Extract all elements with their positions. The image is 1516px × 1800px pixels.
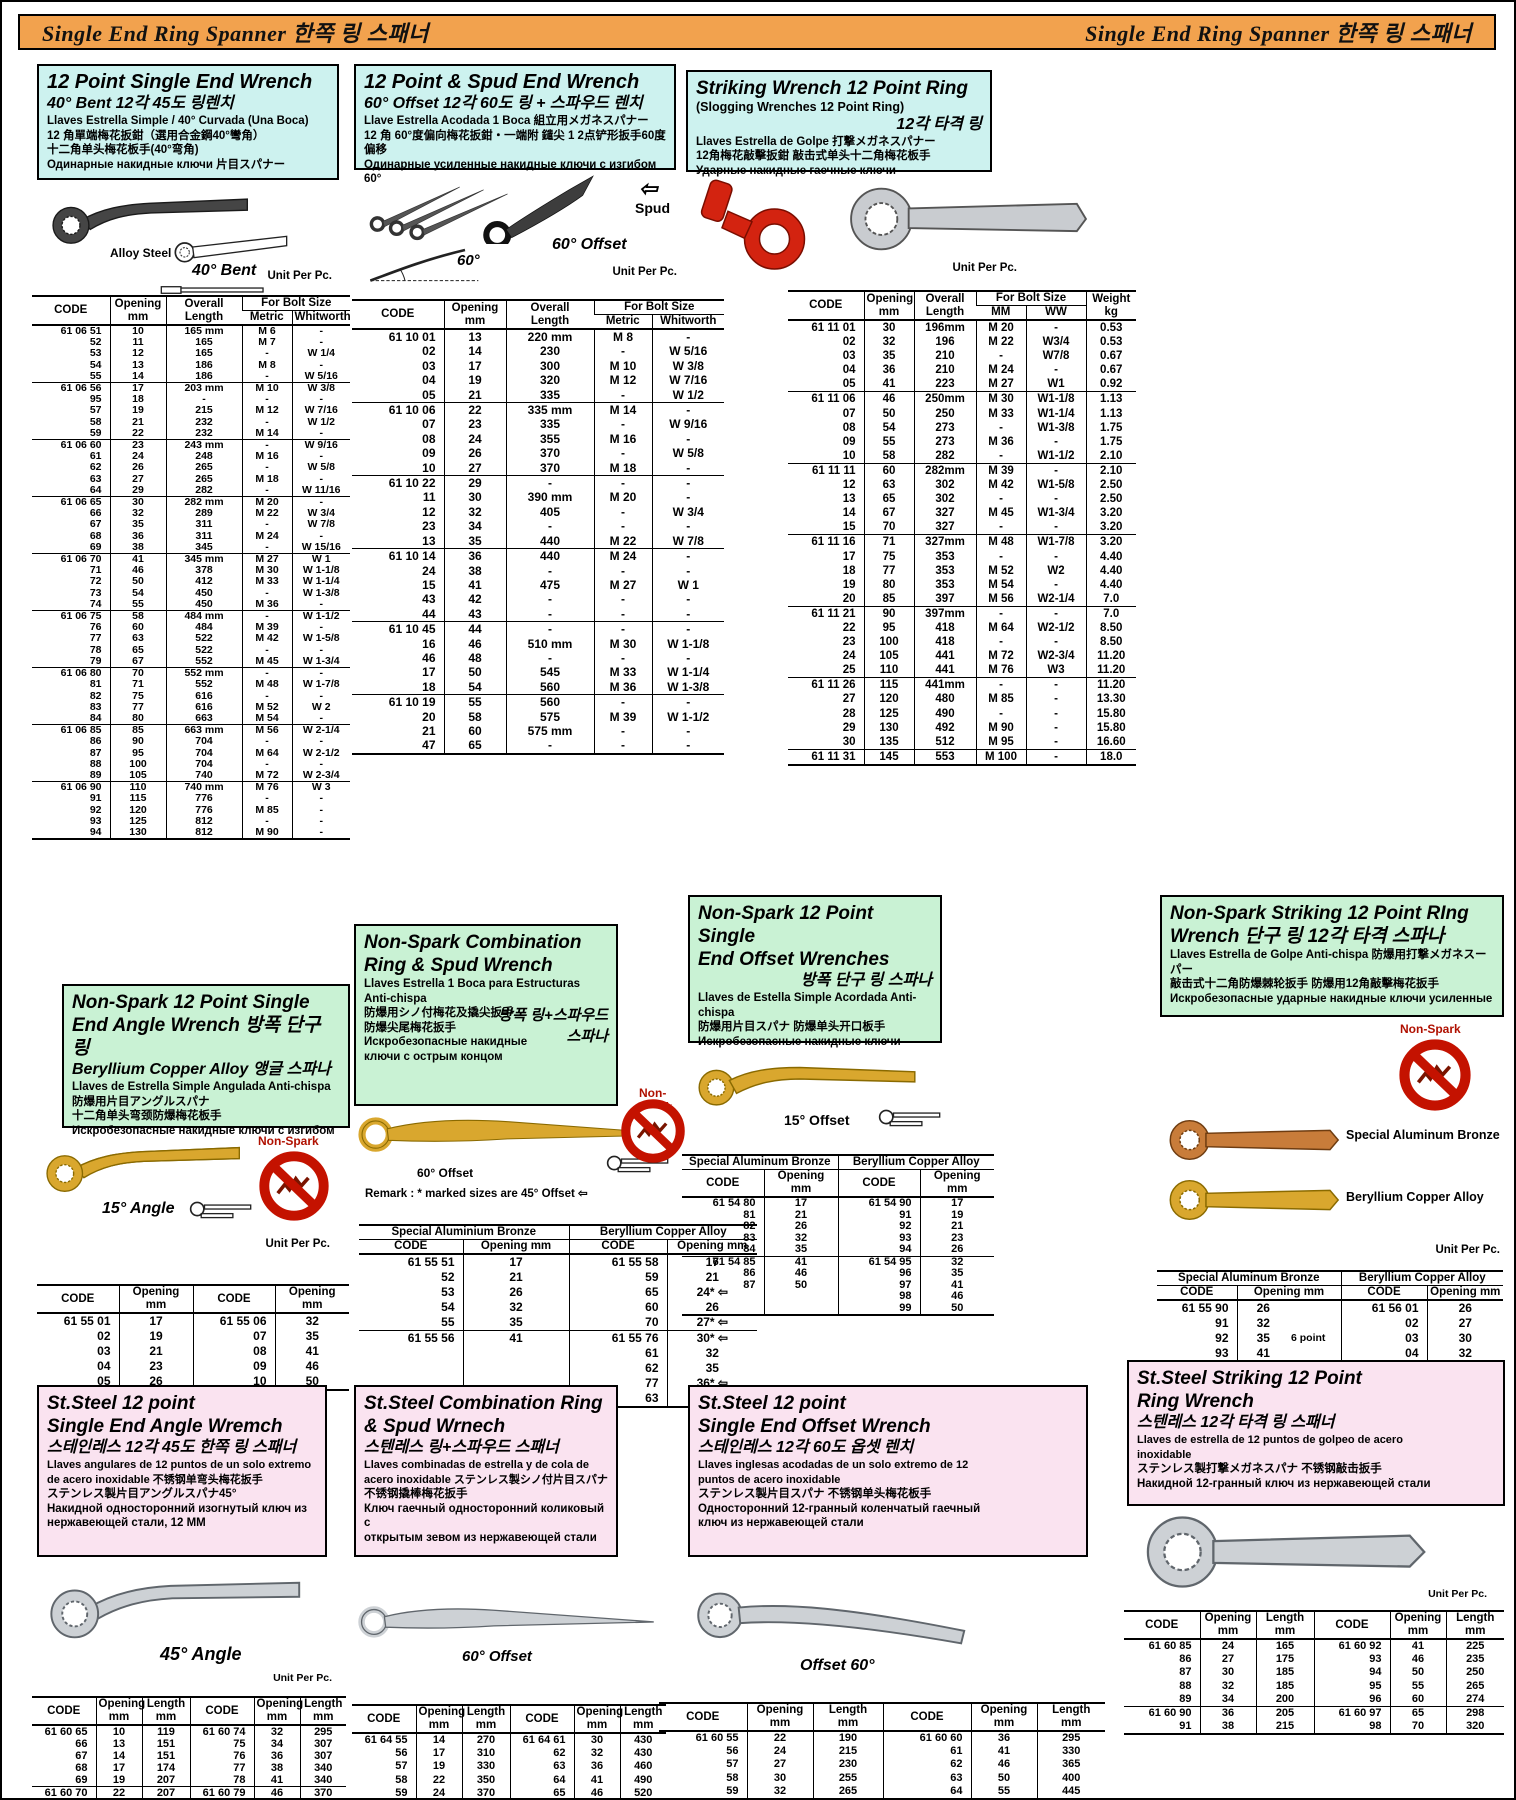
table-cell: 370 (462, 1787, 510, 1800)
table-row: 1130390 mmM 20- (352, 490, 724, 504)
table-cell: 19 (788, 578, 864, 592)
table-cell: - (652, 490, 724, 504)
table-row: 4443--- (352, 607, 724, 622)
table-cell: 78 (190, 1774, 254, 1787)
table-cell: 61 56 01 (1341, 1300, 1427, 1316)
table-cell: 65 (444, 738, 506, 753)
table-cell: W7/8 (1026, 349, 1086, 363)
table-cell: 41 (444, 578, 506, 592)
col-length: Length mm (813, 1703, 883, 1731)
col-opening: Opening mm (864, 291, 914, 320)
table-cell: 95 (1314, 1680, 1390, 1693)
table-cell: - (506, 476, 594, 491)
table-cell: 69 (32, 1774, 96, 1787)
table-cell: 93 (1157, 1346, 1237, 1361)
table-cell: 3.20 (1086, 535, 1136, 550)
table-cell: 89 (32, 770, 110, 782)
col-weight: Weight kg (1086, 291, 1136, 320)
table-cell: 220 mm (506, 329, 594, 344)
table-row: 61 11 2190397mm--7.0 (788, 606, 1136, 621)
table-cell: 54 (444, 680, 506, 695)
col-opening: Opening mm (971, 1703, 1037, 1731)
table-cell: 08 (193, 1344, 275, 1359)
table-cell: M 22 (594, 534, 652, 549)
table-cell: 02 (788, 335, 864, 349)
table-cell: 38 (254, 1762, 300, 1774)
table-cell: 30* ⇦ (667, 1331, 757, 1347)
table-cell: 62 (510, 1747, 574, 1760)
table-cell: M 30 (976, 392, 1026, 407)
table-cell: 60 (864, 463, 914, 478)
table-row: 1570327--3.20 (788, 520, 1136, 535)
table-cell: 47 (352, 738, 444, 753)
table-cell: 16.60 (1086, 735, 1136, 750)
table-cell: 135 (864, 735, 914, 750)
table-cell: - (292, 827, 350, 839)
table-cell: 44 (352, 607, 444, 622)
table-cell: 53 (32, 348, 110, 359)
table-cell: 50 (110, 576, 166, 587)
table-cell: 90 (110, 736, 166, 747)
table-cell: 61 55 90 (1157, 1300, 1237, 1316)
table-cell: M 36 (242, 599, 292, 611)
table-cell: 302 (914, 478, 976, 492)
table-cell: - (976, 349, 1026, 363)
table-cell: 80 (864, 578, 914, 592)
col-opening: Opening mm (254, 1697, 300, 1725)
table-cell: 307 (300, 1738, 346, 1750)
table-cell: 4.40 (1086, 564, 1136, 578)
table-cell: 84 (32, 713, 110, 725)
table-cell: 1.13 (1086, 407, 1136, 421)
col-code: CODE (569, 1240, 667, 1255)
table-cell: 87 (1124, 1666, 1200, 1679)
table-cell: 30 (1200, 1666, 1256, 1679)
unit-per-pc-label: Unit Per Pc. (220, 1238, 330, 1250)
table-cell: W1-3/4 (1026, 506, 1086, 520)
table-cell: 02 (352, 344, 444, 358)
gold-angle-wrench-image (40, 1134, 245, 1194)
section-line: Ключ гаечный односторонний коликовый с о… (364, 1502, 608, 1546)
col-code: CODE (32, 296, 110, 325)
col-opening: Opening mm (275, 1285, 349, 1313)
table-cell: W 1-1/2 (652, 710, 724, 724)
table-cell: 663 (166, 713, 242, 725)
table-cell: - (1026, 363, 1086, 377)
table-row: 61 54 801761 54 9017 (682, 1197, 994, 1210)
table-cell: 23 (788, 635, 864, 649)
table-cell: 26 (1427, 1300, 1503, 1316)
col-material-beryllium: Beryllium Copper Alloy (1341, 1271, 1503, 1286)
table-row: 91115776-- (32, 793, 350, 804)
table-cell: M 45 (976, 506, 1026, 520)
table-cell: 510 mm (506, 637, 594, 651)
table-cell: 1.13 (1086, 392, 1136, 407)
table-cell: - (976, 550, 1026, 564)
grey-striking-wrench-image (842, 180, 1092, 258)
unit-per-pc-label: Unit Per Pc. (907, 262, 1017, 274)
section-line: Llaves de estrella de 12 puntos de golpe… (1137, 1433, 1495, 1462)
table-cell: 327mm (914, 535, 976, 550)
table-row: 0436210M 24-0.67 (788, 363, 1136, 377)
table-cell: 330 (1037, 1745, 1105, 1758)
table-cell: 302 (914, 492, 976, 506)
table-row: 5821232-W 1/2 (32, 417, 350, 428)
table-cell: 120 (864, 692, 914, 706)
table-row: 69192077841340 (32, 1774, 346, 1787)
table-cell: W 5/8 (292, 462, 350, 473)
table-row: 23100418--8.50 (788, 635, 1136, 649)
table-cell (463, 1346, 569, 1361)
col-opening: Opening mm (119, 1285, 193, 1313)
table-cell: M 27 (976, 377, 1026, 392)
table-cell: 215 (813, 1745, 883, 1758)
table-cell: 46 (574, 1787, 620, 1800)
table-cell: W1-5/8 (1026, 478, 1086, 492)
table-cell: 69 (32, 542, 110, 554)
table-cell: 19 (96, 1774, 142, 1787)
table-row: 1365302--2.50 (788, 492, 1136, 506)
table-cell: 26 (110, 462, 166, 473)
table-cell: 8.50 (1086, 621, 1136, 635)
table-cell: 130 (110, 827, 166, 839)
no-spark-icon (620, 1098, 686, 1164)
table-cell: W1-7/8 (1026, 535, 1086, 550)
table-cell: 405 (506, 505, 594, 519)
table-cell: M 48 (976, 535, 1026, 550)
table-cell: 265 (166, 462, 242, 473)
table-cell: W2-1/4 (1026, 592, 1086, 607)
table-cell: 55 (971, 1785, 1037, 1799)
table-cell: 552 (166, 656, 242, 668)
table-cell: W 1-3/4 (292, 656, 350, 668)
spud-arrow-icon: ⇦ (639, 176, 657, 202)
table-cell: 66 (32, 1738, 96, 1750)
table-cell: 3.20 (1086, 520, 1136, 535)
table-cell: - (594, 505, 652, 519)
table-cell: M 90 (242, 827, 292, 839)
table-cell: 59 (569, 1270, 667, 1285)
gold-striking-wrench-image (1162, 1174, 1342, 1226)
section-korean: 방폭 단구 링 스파나 (698, 971, 932, 991)
table-cell: 16 (352, 637, 444, 651)
table-cell: 200 (1256, 1693, 1314, 1707)
table-cell: - (292, 793, 350, 804)
section-line: 12 角 60°度偏向梅花扳鉗・一端附 鑓尖 1 2点铲形扳手60度偏移 (364, 129, 666, 158)
table-row: 9518--- (32, 394, 350, 405)
table-cell: W 1/2 (652, 388, 724, 403)
table-row: 2334--- (352, 519, 724, 533)
table-row: 68171747738340 (32, 1762, 346, 1774)
col-metric: Metric (242, 311, 292, 326)
table-cell: 27 (788, 692, 864, 706)
table-cell: 8.50 (1086, 635, 1136, 649)
section-title: Non-Spark Striking 12 Point RIng (1170, 902, 1494, 925)
table-cell: 35 (463, 1315, 569, 1331)
gold-offset-wrench-image (692, 1050, 922, 1108)
table-cell: 08 (788, 421, 864, 435)
table-cell: 70 (1390, 1720, 1446, 1734)
col-length: Length mm (300, 1697, 346, 1725)
bent-outline-diagram (170, 232, 290, 266)
table-row: 1058282-W1-1/22.10 (788, 449, 1136, 464)
table-cell: - (652, 564, 724, 578)
table-row: 61 10 4544--- (352, 622, 724, 637)
table-cell: W 1-1/4 (292, 576, 350, 587)
table-cell: - (976, 707, 1026, 721)
table-cell: 74 (32, 599, 110, 611)
table-cell: 0.67 (1086, 363, 1136, 377)
table-row: 94130812M 90- (32, 827, 350, 839)
table-cell: - (652, 738, 724, 753)
col-code: CODE (883, 1703, 971, 1731)
table-row: 5922232M 14- (32, 428, 350, 440)
section-line: Односторонний 12-гранный коленчатый гаеч… (698, 1502, 1078, 1531)
col-code: CODE (682, 1170, 764, 1198)
table-cell: 25 (788, 663, 864, 678)
table-cell: 94 (838, 1244, 920, 1256)
table-cell: W2 (1026, 564, 1086, 578)
table-row: 7763522M 42W 1-5/8 (32, 633, 350, 644)
table-cell: W 5/16 (652, 344, 724, 358)
table-row: 61 55 902661 56 0126 (1157, 1300, 1503, 1316)
table-nonspark-angle: CODE Opening mm CODE Opening mm 61 55 01… (37, 1284, 349, 1391)
table-cell: 38 (444, 564, 506, 578)
table-spud-end: CODE Opening mm Overall Length For Bolt … (352, 299, 724, 755)
table-cell: 30 (864, 320, 914, 335)
col-length: Overall Length (506, 300, 594, 329)
table-cell: 36 (971, 1731, 1037, 1745)
offset60-label: 60° Offset (417, 1166, 473, 1180)
table-cell: M 76 (976, 663, 1026, 678)
table-cell: 13 (352, 534, 444, 549)
col-material-bronze: Special Aluminum Bronze (1157, 1271, 1341, 1286)
table-row: 88321859555265 (1124, 1680, 1504, 1693)
table-cell: 196mm (914, 320, 976, 335)
section-title: Non-Spark 12 Point Single (72, 991, 340, 1014)
table-cell: 14 (110, 371, 166, 383)
table-row: 61 11 0646250mmM 30W1-1/81.13 (788, 392, 1136, 407)
table-row: 82269221 (682, 1221, 994, 1233)
table-cell: 03 (37, 1344, 119, 1359)
table-cell: 91 (1157, 1316, 1237, 1331)
section-line: 12 角單端梅花扳鉗（選用合金鋼40°彎角） (47, 129, 329, 144)
table-cell: 41 (463, 1331, 569, 1347)
table-cell: 282mm (914, 463, 976, 478)
table-cell: - (652, 607, 724, 622)
table-row: 7354450-W 1-3/8 (32, 588, 350, 599)
table-cell: 15 (788, 520, 864, 535)
section-line: 防爆用片目アングルスパナ (72, 1095, 340, 1110)
table-row: 0955273M 36-1.75 (788, 435, 1136, 449)
table-cell: - (594, 622, 652, 637)
table-cell: 355 (506, 432, 594, 446)
col-bolt-size: For Bolt Size (594, 300, 724, 315)
table-cell: 553 (914, 749, 976, 765)
table-row: 61 64 551427061 64 6130430 (352, 1733, 666, 1747)
table-cell: 32 (574, 1747, 620, 1760)
table-cell: 29 (444, 476, 506, 491)
table-row: 61 60 702220761 60 7946370 (32, 1787, 346, 1800)
col-length: Length mm (142, 1697, 190, 1725)
col-opening: Opening mm (764, 1170, 838, 1198)
section-subtitle: 스테인레스 12각 45도 한쪽 링 스패너 (47, 1438, 317, 1458)
illustration-ststeel-offset: Offset 60° (692, 1587, 1002, 1699)
table-cell: 23 (119, 1359, 193, 1374)
col-bolt-size: For Bolt Size (242, 296, 350, 311)
table-cell: W1-1/4 (1026, 407, 1086, 421)
table-cell: 62 (32, 462, 110, 473)
table-cell: W1 (1026, 377, 1086, 392)
table-cell: 207 (142, 1787, 190, 1800)
table-row: 0854273-W1-3/81.75 (788, 421, 1136, 435)
table-cell (359, 1361, 463, 1376)
table-row: 57193306336460 (352, 1760, 666, 1773)
col-code: CODE (510, 1705, 574, 1733)
table-cell: 10 (788, 449, 864, 464)
table-cell: 02 (1341, 1316, 1427, 1331)
table-cell: 36 (444, 549, 506, 564)
table-cell: 34 (1200, 1693, 1256, 1707)
table-cell: 0.92 (1086, 377, 1136, 392)
table-row: 0317300M 10W 3/8 (352, 359, 724, 373)
table-cell: 12 (352, 505, 444, 519)
table-row: 61 10 0113220 mmM 8- (352, 329, 724, 344)
table-cell: 19 (416, 1760, 462, 1773)
table-row: 03210841 (37, 1344, 349, 1359)
section-header-ststeel-combination: St.Steel Combination Ring & Spud Wrnech … (354, 1385, 618, 1557)
table-cell: 77 (32, 633, 110, 644)
section-title: 12 Point & Spud End Wrench (364, 71, 666, 94)
table-cell: 24 (747, 1745, 813, 1758)
col-material-beryllium: Beryllium Copper Alloy (838, 1155, 994, 1170)
table-cell: 48 (444, 651, 506, 665)
table-cell (682, 1303, 764, 1316)
table-cell: 63 (864, 478, 914, 492)
table-row: 84359426 (682, 1244, 994, 1256)
table-cell: 255 (813, 1772, 883, 1785)
table-cell: - (292, 736, 350, 747)
table-cell: 64 (32, 485, 110, 497)
no-spark-icon (258, 1150, 330, 1222)
table-row: 4765--- (352, 738, 724, 753)
table-cell: 61 (883, 1745, 971, 1758)
table-row: 8690704-- (32, 736, 350, 747)
table-row: 6632289M 22W 3/4 (32, 508, 350, 519)
table-cell: 57 (659, 1758, 747, 1771)
bronze-striking-wrench-image (1162, 1114, 1342, 1166)
table-cell: 151 (142, 1738, 190, 1750)
table-cell: W 11/16 (292, 485, 350, 497)
table-cell: 79 (32, 656, 110, 668)
table-cell: 87 (682, 1280, 764, 1292)
table-cell: 70 (864, 520, 914, 535)
illustration-nonspark-offset: 15° Offset (692, 1050, 992, 1150)
section-subtitle: 40° Bent 12각 45도 링렌치 (47, 94, 329, 114)
steel-angle-wrench-image (42, 1564, 307, 1642)
section-line: 十二角单头弯颈防爆梅花板手 (72, 1109, 340, 1124)
table-cell: W 9/16 (652, 417, 724, 431)
remark-label: Remark : * marked sizes are 45° Offset ⇦ (365, 1186, 588, 1200)
section-title: Striking Wrench 12 Point Ring (696, 77, 982, 100)
table-cell: 15.80 (1086, 707, 1136, 721)
section-line: Llaves Estrella de Golpe 打撃メガネスパナー (696, 135, 982, 150)
table-row: 61 11 1160282mmM 39-2.10 (788, 463, 1136, 478)
catalog-page: Single End Ring Spanner 한쪽 링 스패너 Single … (0, 0, 1516, 1800)
table-cell: 397 (914, 592, 976, 607)
table-ststeel-angle: CODE Opening mm Length mm CODE Opening m… (32, 1696, 346, 1800)
section-line: Llaves inglesas acodadas de un solo extr… (698, 1458, 1078, 1487)
table-cell: M 22 (976, 335, 1026, 349)
table-cell (359, 1346, 463, 1361)
table-row: 8377616M 52W 2 (32, 702, 350, 713)
table-cell: 14 (96, 1750, 142, 1762)
table-cell: M 12 (594, 373, 652, 387)
table-cell: W 1-3/8 (652, 680, 724, 695)
table-cell: 1.75 (1086, 421, 1136, 435)
table-cell: 320 (1446, 1720, 1504, 1734)
table-cell: 512 (914, 735, 976, 750)
table-cell: 04 (37, 1359, 119, 1374)
table-cell: W2-3/4 (1026, 649, 1086, 663)
table-cell: 14 (788, 506, 864, 520)
table-cell: 55 (359, 1315, 463, 1331)
table-cell: 61 64 61 (510, 1733, 574, 1747)
table-cell: 56 (659, 1745, 747, 1758)
table-row: 61 10 2229--- (352, 476, 724, 491)
table-cell: 15.80 (1086, 721, 1136, 735)
table-cell (1289, 1316, 1341, 1331)
table-cell: 215 (1256, 1720, 1314, 1734)
table-row: 59322656455445 (659, 1785, 1105, 1799)
section-title: Single End Offset Wrench (698, 1415, 1078, 1438)
table-cell: - (652, 651, 724, 665)
table-cell: 94 (32, 827, 110, 839)
banner-title-right: Single End Ring Spanner 한쪽 링 스패너 (1085, 16, 1472, 48)
table-cell: 77 (864, 564, 914, 578)
table-cell: 445 (1037, 1785, 1105, 1799)
table-cell: 545 (506, 665, 594, 679)
section-line: Llaves combinadas de estrella y de cola … (364, 1458, 608, 1487)
table-cell: 86 (32, 736, 110, 747)
table-cell: - (242, 519, 292, 530)
table-cell: 23 (352, 519, 444, 533)
table-cell: 295 (1037, 1731, 1105, 1745)
table-cell: - (1026, 320, 1086, 335)
table-row: 28125490--15.80 (788, 707, 1136, 721)
table-cell: - (594, 417, 652, 431)
table-row: 30135512M 95-16.60 (788, 735, 1136, 750)
illustration-ststeel-angle: 45° Angle Unit Per Pc. (42, 1564, 342, 1689)
unit-per-pc-label: Unit Per Pc. (222, 1672, 332, 1684)
section-line: 12角梅花敲擊扳鉗 敲击式单头十二角梅花板手 (696, 149, 982, 164)
table-cell: 440 (506, 534, 594, 549)
table-row: 8275616-- (32, 691, 350, 702)
table-cell: 36 (864, 363, 914, 377)
table-cell: M 10 (594, 359, 652, 373)
table-cell: 330 (462, 1760, 510, 1773)
table-cell: 61 10 19 (352, 695, 444, 710)
table-cell: 55 (1390, 1680, 1446, 1693)
table-row: 58223506441490 (352, 1774, 666, 1787)
table-cell: 340 (300, 1762, 346, 1774)
table-cell: 09 (788, 435, 864, 449)
table-row: 1335440M 22W 7/8 (352, 534, 724, 549)
table-cell: 12 (110, 348, 166, 359)
table-cell: 46 (764, 1268, 838, 1280)
table-cell: M 85 (976, 692, 1026, 706)
table-cell: 94 (1314, 1666, 1390, 1679)
